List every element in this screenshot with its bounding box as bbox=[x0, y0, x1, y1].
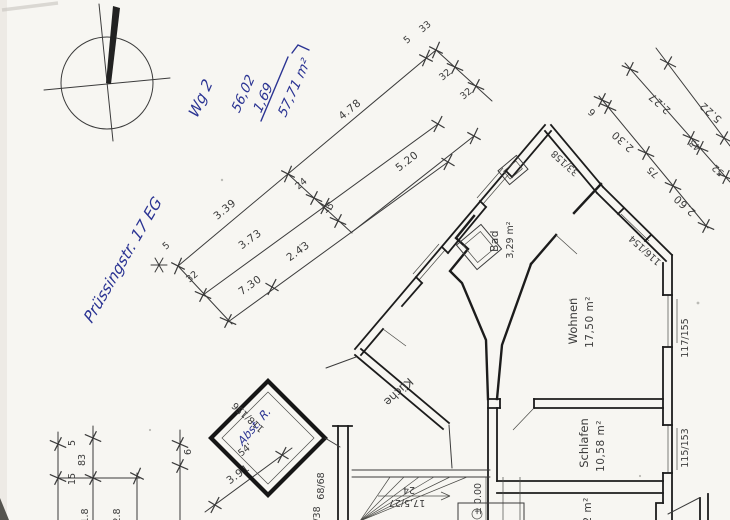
room-area-schlafen: 10,58 m² bbox=[595, 420, 607, 472]
stair-code: /38 bbox=[312, 506, 323, 520]
room-name-bad: Bad bbox=[489, 230, 501, 252]
dim-value: 83 bbox=[77, 454, 88, 466]
stair-step-count: 24 bbox=[403, 484, 415, 495]
dim-value-clipped: 2.8 bbox=[112, 508, 123, 520]
window-code: 117/155 bbox=[680, 318, 691, 357]
window-code: 115/153 bbox=[680, 428, 691, 467]
room-area-bad: 3,29 m² bbox=[505, 221, 516, 258]
stair-code: 68/68 bbox=[316, 472, 327, 499]
room-name-wohnen: Wohnen bbox=[566, 298, 580, 345]
dim-value: 6 bbox=[183, 449, 194, 455]
dim-value: 5 bbox=[67, 440, 78, 446]
level-mark: ± 0.00 bbox=[473, 483, 484, 515]
room-area-flur-partial: 12 m² bbox=[582, 497, 594, 520]
scanned-floor-plan: Wg 2 56,02 1,69 57,71 m² Prüssingstr. 17… bbox=[0, 0, 730, 520]
dim-value: 15 bbox=[67, 473, 78, 485]
stair-step-ratio: 17,5/27 bbox=[389, 497, 425, 508]
room-area-wohnen: 17,50 m² bbox=[584, 296, 596, 348]
room-name-schlafen: Schlafen bbox=[577, 418, 591, 468]
dim-value-clipped: 1.8 bbox=[80, 508, 91, 520]
scan-edge-shadow bbox=[0, 0, 7, 520]
floor-plan-drawing: Wg 2 56,02 1,69 57,71 m² Prüssingstr. 17… bbox=[0, 0, 730, 520]
